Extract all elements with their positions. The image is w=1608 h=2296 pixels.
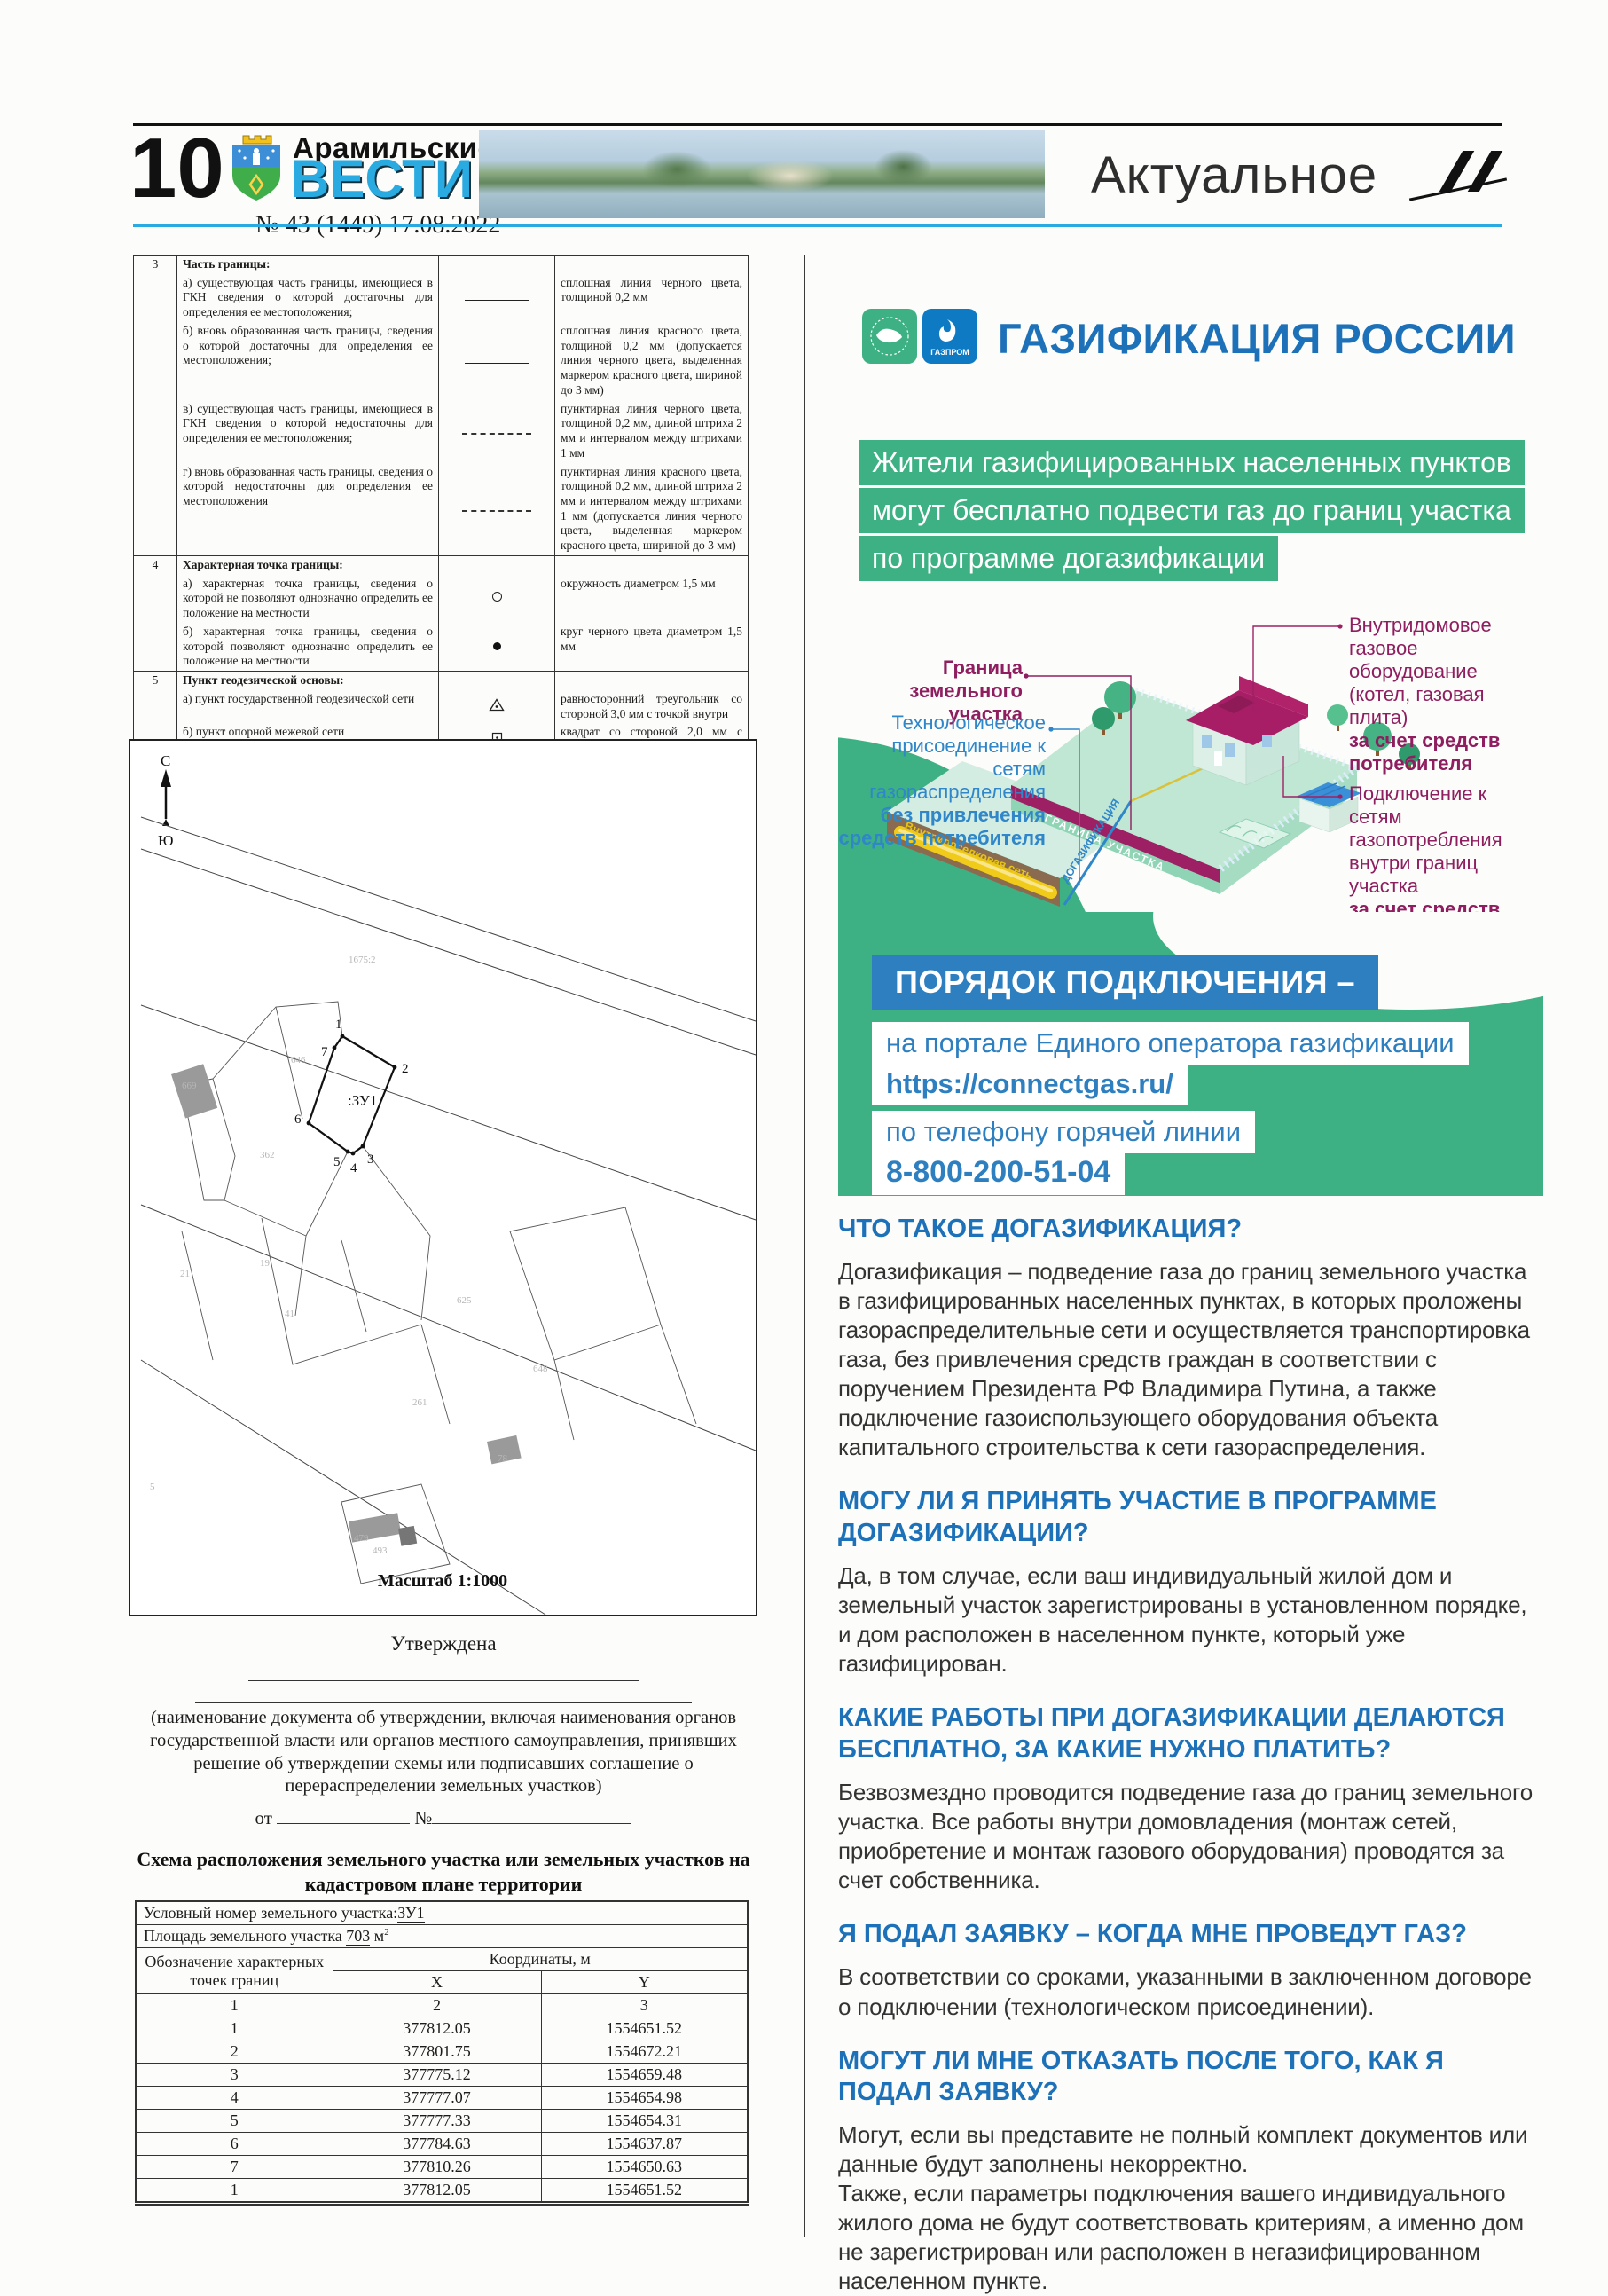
date-number-line: от № — [133, 1807, 754, 1829]
gazprom-logo: ГАЗПРОМ — [922, 309, 977, 364]
coord-point: 5 — [136, 2110, 333, 2133]
parcel-label: :ЗУ1 — [348, 1092, 377, 1109]
lead-line: могут бесплатно подвести газ до границ у… — [859, 488, 1525, 533]
faq-question: ЧТО ТАКОЕ ДОГАЗИФИКАЦИЯ? — [838, 1214, 1543, 1245]
approval-block: Утверждена (наименование документа об ут… — [133, 1632, 754, 1829]
svg-text:19: 19 — [260, 1258, 271, 1269]
coord-point: 6 — [136, 2133, 333, 2156]
coord-row: 1377812.051554651.52 — [136, 2017, 748, 2040]
coord-row: 7377810.261554650.63 — [136, 2156, 748, 2179]
faq-item: ЧТО ТАКОЕ ДОГАЗИФИКАЦИЯ? Догазификация –… — [838, 1214, 1543, 1462]
x-column-header: X — [333, 1971, 541, 1994]
table-header-row: Обозначение характерных точек границ Коо… — [136, 1948, 748, 1971]
legend-item-spec: сплошная линия черного цвета, толщиной 0… — [555, 274, 749, 322]
vertex-label: 4 — [350, 1161, 357, 1176]
coord-point: 3 — [136, 2064, 333, 2087]
coord-y: 1554651.52 — [541, 2179, 748, 2204]
faq-answer: Могут, если вы представите не полный ком… — [838, 2120, 1543, 2296]
gasification-logo — [862, 309, 917, 364]
area-value: 703 — [346, 1927, 370, 1946]
approved-label: Утверждена — [133, 1632, 754, 1655]
coord-row: 3377775.121554659.48 — [136, 2064, 748, 2087]
faq-item: Я ПОДАЛ ЗАЯВКУ – КОГДА МНЕ ПРОВЕДУТ ГАЗ?… — [838, 1919, 1543, 2021]
portal-url[interactable]: https://connectgas.ru/ — [872, 1063, 1188, 1105]
south-label: Ю — [158, 832, 173, 849]
lead-line: по программе догазификации — [859, 536, 1278, 581]
lead-line: Жители газифицированных населенных пункт… — [859, 440, 1525, 485]
faq-answer: В соответствии со сроками, указанными в … — [838, 1962, 1543, 2021]
legend-row-num: 3 — [134, 256, 177, 556]
dashed-line-symbol — [462, 433, 531, 435]
scheme-title: Схема расположения земельного участка ил… — [133, 1847, 754, 1896]
vertex-label: 2 — [402, 1062, 409, 1076]
faq-item: МОГУТ ЛИ МНЕ ОТКАЗАТЬ ПОСЛЕ ТОГО, КАК Я … — [838, 2046, 1543, 2296]
legend-item-text: г) вновь образованная часть границы, све… — [177, 463, 439, 556]
legend-item-text: б) характерная точка границы, сведения о… — [177, 623, 439, 672]
coords-column-header: Координаты, м — [333, 1948, 748, 1971]
legend-item-text: а) характерная точка границы, сведения о… — [177, 575, 439, 623]
vertex-label: 1 — [335, 1018, 342, 1032]
conditional-number-label: Условный номер земельного участка: — [144, 1904, 397, 1922]
coord-x: 377777.07 — [333, 2087, 541, 2110]
legend-row-5: 5 Пункт геодезической основы: — [134, 672, 749, 690]
legend-item-spec: сплошная линия красного цвета, толщиной … — [555, 322, 749, 400]
hotline-number[interactable]: 8-800-200-51-04 — [872, 1150, 1125, 1195]
coord-y: 1554650.63 — [541, 2156, 748, 2179]
faq-answer: Да, в том случае, если ваш индивидуальны… — [838, 1561, 1543, 1679]
legend-item: а) существующая часть границы, имеющиеся… — [134, 274, 749, 322]
conditional-number-value: ЗУ1 — [397, 1904, 424, 1923]
cadastral-map: С Ю — [129, 739, 757, 1616]
solid-line-symbol — [465, 300, 529, 301]
y-column-header: Y — [541, 1971, 748, 1994]
svg-text:479: 479 — [354, 1533, 369, 1544]
coord-x: 377812.05 — [333, 2017, 541, 2040]
approval-note: (наименование документа об утверждении, … — [133, 1707, 754, 1798]
coordinates-table: Условный номер земельного участка:ЗУ1 Пл… — [135, 1900, 749, 2206]
dashed-line-symbol — [462, 510, 531, 512]
vertex-label: 3 — [367, 1152, 374, 1167]
coord-point: 1 — [136, 2179, 333, 2204]
signature-line — [195, 1702, 692, 1703]
coord-y: 1554659.48 — [541, 2064, 748, 2087]
coord-row: 6377784.631554637.87 — [136, 2133, 748, 2156]
circle-outline-symbol — [492, 592, 502, 602]
legend-item: г) вновь образованная часть границы, све… — [134, 463, 749, 556]
svg-text:648: 648 — [533, 1364, 548, 1374]
faq-question: КАКИЕ РАБОТЫ ПРИ ДОГАЗИФИКАЦИИ ДЕЛАЮТСЯ … — [838, 1702, 1543, 1765]
coord-row: 4377777.071554654.98 — [136, 2087, 748, 2110]
svg-text:41: 41 — [285, 1309, 294, 1319]
legend-row-title: Характерная точка границы: — [177, 555, 439, 574]
legend-item-spec: пунктирная линия красного цвета, толщино… — [555, 463, 749, 556]
svg-text:78: 78 — [498, 1453, 508, 1464]
coord-x: 377777.33 — [333, 2110, 541, 2133]
svg-text:625: 625 — [457, 1295, 472, 1306]
coord-point: 4 — [136, 2087, 333, 2110]
legend-row-4: 4 Характерная точка границы: — [134, 555, 749, 574]
faq-item: МОГУ ЛИ Я ПРИНЯТЬ УЧАСТИЕ В ПРОГРАММЕ ДО… — [838, 1486, 1543, 1679]
svg-text:1675:2: 1675:2 — [349, 955, 376, 965]
coord-x: 377810.26 — [333, 2156, 541, 2179]
portal-line: на портале Единого оператора газификации — [872, 1022, 1469, 1065]
legend-item-text: а) пункт государственной геодезической с… — [177, 690, 439, 723]
svg-text:21: 21 — [180, 1269, 190, 1279]
infographic-title: ГАЗИФИКАЦИЯ РОССИИ — [998, 314, 1516, 363]
filled-circle-symbol — [493, 642, 501, 650]
faq-answer: Догазификация – подведение газа до грани… — [838, 1257, 1543, 1462]
lead-block: Жители газифицированных населенных пункт… — [859, 440, 1543, 584]
index-row: 1 2 3 — [136, 1994, 748, 2017]
faq-answer: Безвозмездно проводится подведение газа … — [838, 1778, 1543, 1895]
vertex-label: 6 — [294, 1113, 302, 1127]
header-top-rule — [133, 123, 1502, 126]
order-heading: ПОРЯДОК ПОДКЛЮЧЕНИЯ – — [872, 955, 1378, 1010]
page-number: 10 — [129, 126, 224, 211]
hotline-line: по телефону горячей линии — [872, 1111, 1255, 1153]
svg-text:646: 646 — [291, 1055, 306, 1065]
legend-item: а) характерная точка границы, сведения о… — [134, 575, 749, 623]
vertex-label: 7 — [321, 1045, 328, 1059]
legend-row-num: 4 — [134, 555, 177, 671]
number-blank — [432, 1823, 631, 1824]
legend-item-spec: круг черного цвета диаметром 1,5 мм — [555, 623, 749, 672]
svg-text:5: 5 — [150, 1482, 155, 1492]
coord-x: 377775.12 — [333, 2064, 541, 2087]
section-title: Актуальное — [1091, 145, 1377, 205]
table-row: Условный номер земельного участка:ЗУ1 — [136, 1901, 748, 1925]
triangle-dot-symbol — [489, 698, 505, 712]
legend-item: а) пункт государственной геодезической с… — [134, 690, 749, 723]
north-label: С — [161, 752, 170, 769]
callout-tech-connection: Технологическое присоединение к сетям га… — [838, 712, 1046, 850]
vertex-label: 5 — [333, 1155, 341, 1169]
double-slash-icon — [1408, 149, 1515, 206]
area-unit-sup: 2 — [384, 1927, 388, 1938]
legend-item: б) характерная точка границы, сведения о… — [134, 623, 749, 672]
legend-item-spec: окружность диаметром 1,5 мм — [555, 575, 749, 623]
column-divider — [804, 255, 805, 2237]
map-scale-caption: Масштаб 1:1000 — [378, 1571, 507, 1591]
table-row: Площадь земельного участка 703 м2 — [136, 1925, 748, 1948]
coord-x: 377784.63 — [333, 2133, 541, 2156]
header-photo — [479, 130, 1045, 218]
legend-item-spec: пунктирная линия черного цвета, толщиной… — [555, 400, 749, 463]
legend-item-spec: равносторонний треугольник со стороной 3… — [555, 690, 749, 723]
coord-y: 1554651.52 — [541, 2017, 748, 2040]
legend-row-3: 3 Часть границы: — [134, 256, 749, 274]
faq-question: Я ПОДАЛ ЗАЯВКУ – КОГДА МНЕ ПРОВЕДУТ ГАЗ? — [838, 1919, 1543, 1950]
city-coat-of-arms — [229, 133, 284, 206]
header-blue-rule — [133, 224, 1502, 227]
svg-text:493: 493 — [373, 1545, 388, 1556]
legend-item: в) существующая часть границы, имеющиеся… — [134, 400, 749, 463]
legend-row-title: Часть границы: — [177, 256, 439, 274]
connection-order-panel: ПОРЯДОК ПОДКЛЮЧЕНИЯ – на портале Единого… — [838, 912, 1543, 1196]
svg-text:362: 362 — [260, 1150, 275, 1160]
legend-item-text: а) существующая часть границы, имеющиеся… — [177, 274, 439, 322]
legend-item-text: в) существующая часть границы, имеющиеся… — [177, 400, 439, 463]
callout-indoor-equipment: Внутридомовое газовое оборудование (коте… — [1349, 614, 1542, 775]
faq-section: ЧТО ТАКОЕ ДОГАЗИФИКАЦИЯ? Догазификация –… — [838, 1214, 1543, 2296]
newspaper-name-main: ВЕСТИ — [291, 153, 473, 206]
faq-item: КАКИЕ РАБОТЫ ПРИ ДОГАЗИФИКАЦИИ ДЕЛАЮТСЯ … — [838, 1702, 1543, 1895]
number-label: № — [414, 1807, 432, 1828]
coord-row: 1377812.051554651.52 — [136, 2179, 748, 2204]
coord-row: 5377777.331554654.31 — [136, 2110, 748, 2133]
date-blank — [277, 1823, 410, 1824]
svg-text:669: 669 — [182, 1081, 197, 1091]
area-unit: м — [374, 1927, 384, 1945]
coord-x: 377812.05 — [333, 2179, 541, 2204]
gas-illustration: Внутрипоселковая сеть ГРАНИЦА УЧАСТКА ДО… — [838, 612, 1543, 912]
legend-item-text: б) вновь образованная часть границы, све… — [177, 322, 439, 400]
gazprom-wordmark: ГАЗПРОМ — [930, 348, 969, 357]
coord-point: 1 — [136, 2017, 333, 2040]
faq-question: МОГУ ЛИ Я ПРИНЯТЬ УЧАСТИЕ В ПРОГРАММЕ ДО… — [838, 1486, 1543, 1549]
coord-row: 2377801.751554672.21 — [136, 2040, 748, 2064]
points-column-header: Обозначение характерных точек границ — [136, 1948, 333, 1994]
coord-point: 2 — [136, 2040, 333, 2064]
signature-line — [248, 1680, 639, 1681]
faq-question: МОГУТ ЛИ МНЕ ОТКАЗАТЬ ПОСЛЕ ТОГО, КАК Я … — [838, 2046, 1543, 2109]
svg-text:261: 261 — [412, 1397, 427, 1408]
solid-line-symbol — [465, 363, 529, 364]
from-label: от — [255, 1807, 272, 1828]
legend-item: б) вновь образованная часть границы, све… — [134, 322, 749, 400]
coord-y: 1554672.21 — [541, 2040, 748, 2064]
legend-row-title: Пункт геодезической основы: — [177, 672, 439, 690]
coord-y: 1554654.31 — [541, 2110, 748, 2133]
coord-point: 7 — [136, 2156, 333, 2179]
coord-x: 377801.75 — [333, 2040, 541, 2064]
coord-y: 1554654.98 — [541, 2087, 748, 2110]
coord-y: 1554637.87 — [541, 2133, 748, 2156]
area-label: Площадь земельного участка — [144, 1927, 342, 1945]
